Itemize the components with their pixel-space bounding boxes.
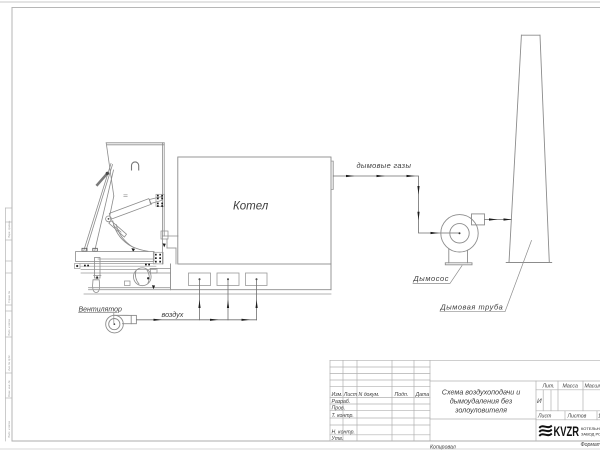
svg-text:Схема воздухоподачи и: Схема воздухоподачи и (442, 388, 520, 397)
svg-text:Формат: Формат (581, 442, 600, 448)
svg-text:Лит.: Лит. (542, 384, 555, 390)
svg-text:Справ. №: Справ. № (7, 291, 11, 303)
svg-text:Подп.: Подп. (395, 392, 409, 398)
svg-text:дымоудаления без: дымоудаления без (450, 397, 513, 406)
svg-text:Инв. № дубл.: Инв. № дубл. (7, 354, 11, 371)
svg-text:воздух: воздух (162, 310, 184, 319)
svg-text:Дымовая труба: Дымовая труба (440, 302, 504, 311)
svg-text:Т. контр.: Т. контр. (332, 413, 354, 419)
svg-text:Масса: Масса (563, 384, 578, 390)
svg-text:Лист: Лист (537, 414, 552, 420)
svg-text:Пров.: Пров. (332, 405, 346, 411)
svg-text:KVZR: KVZR (554, 423, 580, 439)
svg-text:Копировал: Копировал (430, 444, 456, 450)
svg-text:Подп. и дата: Подп. и дата (7, 319, 11, 336)
svg-text:Лист: Лист (343, 392, 358, 398)
svg-text:Подп. и дата: Подп. и дата (7, 421, 11, 438)
svg-text:Перв. примен.: Перв. примен. (7, 220, 11, 238)
svg-text:Листов: Листов (567, 414, 587, 420)
svg-text:N докум.: N докум. (359, 392, 380, 398)
svg-text:Дымосос: Дымосос (413, 274, 450, 283)
svg-text:Взам. инв. №: Взам. инв. № (7, 380, 11, 397)
svg-text:И: И (537, 398, 542, 405)
svg-text:дымовые газы: дымовые газы (357, 161, 412, 170)
svg-text:Изм.: Изм. (332, 392, 343, 398)
svg-text:золоуловителя: золоуловителя (454, 406, 507, 415)
svg-text:Утв.: Утв. (332, 436, 344, 442)
svg-text:Котел: Котел (233, 201, 269, 213)
svg-text:КОТЕЛЬНЫЙ: КОТЕЛЬНЫЙ (581, 426, 600, 431)
svg-text:Дата: Дата (415, 392, 430, 398)
svg-text:Н. контр.: Н. контр. (332, 429, 355, 435)
svg-text:ЗАВОД РОС: ЗАВОД РОС (581, 432, 600, 437)
svg-text:Масшт.: Масшт. (585, 384, 600, 390)
svg-text:Разраб.: Разраб. (332, 399, 351, 405)
